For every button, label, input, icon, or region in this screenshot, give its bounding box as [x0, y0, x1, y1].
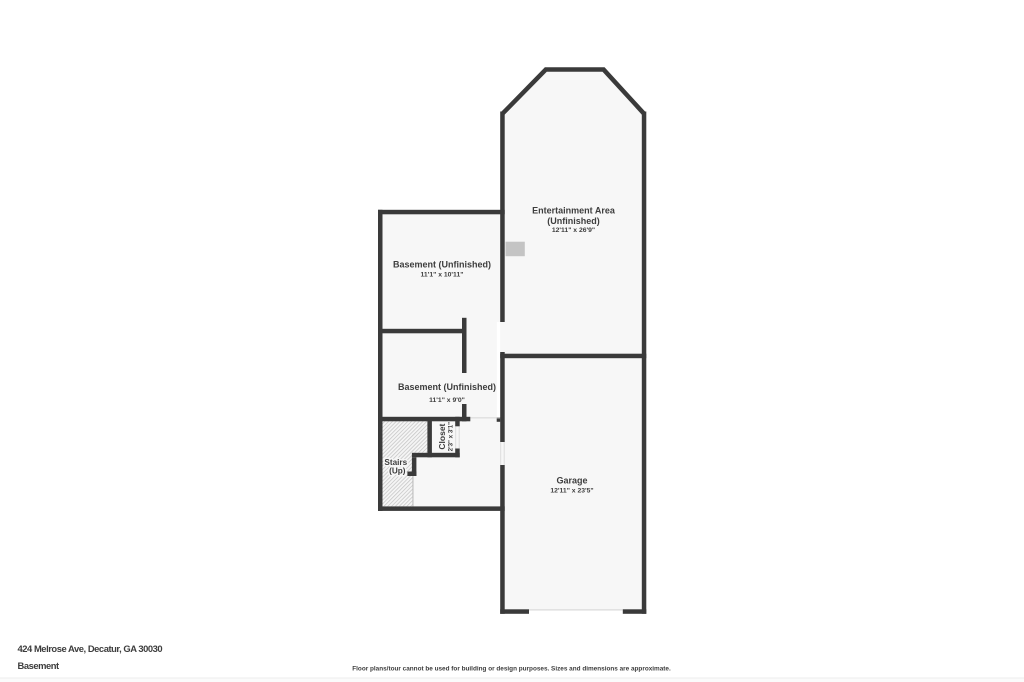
svg-text:Basement: Basement	[18, 660, 60, 671]
svg-text:Basement (Unfinished): Basement (Unfinished)	[393, 260, 491, 270]
svg-text:Entertainment Area: Entertainment Area	[532, 206, 616, 216]
svg-text:2'3" x 3'1": 2'3" x 3'1"	[448, 422, 455, 452]
svg-text:Garage: Garage	[556, 475, 587, 485]
svg-text:12'11" x 26'9": 12'11" x 26'9"	[552, 227, 595, 234]
svg-text:(Unfinished): (Unfinished)	[547, 216, 600, 226]
svg-text:Closet: Closet	[437, 423, 447, 449]
svg-text:11'1" x 10'11": 11'1" x 10'11"	[421, 272, 464, 279]
svg-text:11'1" x 9'0": 11'1" x 9'0"	[429, 397, 465, 404]
svg-text:Floor plans/tour cannot be use: Floor plans/tour cannot be used for buil…	[352, 666, 671, 673]
svg-text:(Up): (Up)	[389, 466, 406, 475]
svg-text:424 Melrose Ave, Decatur, GA 3: 424 Melrose Ave, Decatur, GA 30030	[18, 643, 163, 654]
svg-text:Basement (Unfinished): Basement (Unfinished)	[398, 382, 496, 392]
svg-text:12'11" x 23'5": 12'11" x 23'5"	[550, 487, 593, 494]
